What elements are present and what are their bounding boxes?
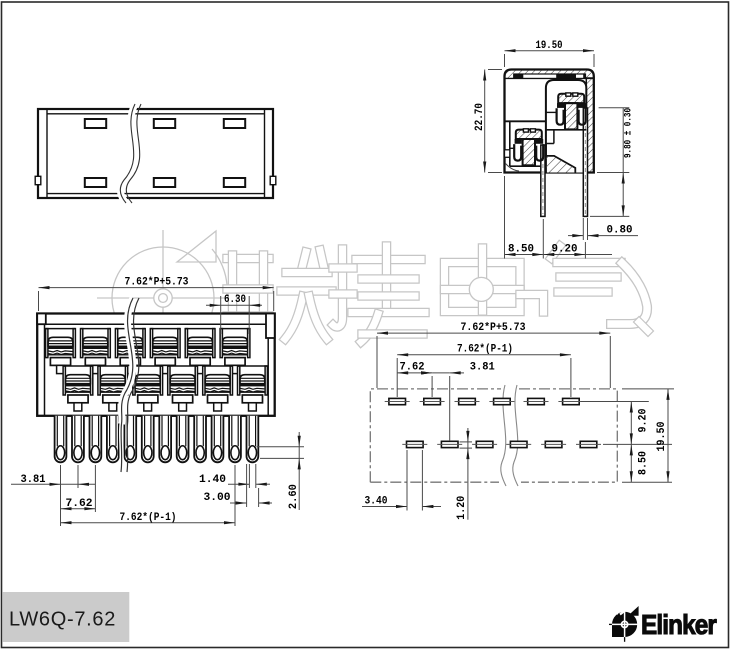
svg-text:7.62*(P-1): 7.62*(P-1)	[120, 512, 177, 524]
svg-text:19.50: 19.50	[536, 40, 563, 52]
svg-text:3.81: 3.81	[470, 362, 495, 374]
svg-text:7.62*P+5.73: 7.62*P+5.73	[461, 322, 526, 334]
svg-text:8.50: 8.50	[637, 451, 649, 475]
svg-text:3.00: 3.00	[204, 492, 231, 504]
svg-text:9.80 ± 0.30: 9.80 ± 0.30	[623, 108, 635, 158]
svg-text:0.80: 0.80	[607, 225, 633, 237]
svg-text:LW6Q-7.62: LW6Q-7.62	[9, 609, 116, 631]
svg-text:6.30: 6.30	[224, 294, 246, 306]
svg-text:9.20: 9.20	[637, 409, 649, 433]
svg-text:7.62: 7.62	[400, 362, 425, 374]
svg-text:22.70: 22.70	[474, 103, 486, 131]
svg-text:19.50: 19.50	[656, 422, 668, 452]
svg-text:2.60: 2.60	[288, 484, 300, 509]
svg-text:7.62*P+5.73: 7.62*P+5.73	[125, 276, 189, 288]
svg-text:7.62*(P-1): 7.62*(P-1)	[457, 343, 513, 355]
svg-text:1.20: 1.20	[456, 496, 468, 520]
svg-text:3.81: 3.81	[21, 474, 46, 486]
svg-text:9.20: 9.20	[552, 243, 578, 255]
svg-text:1.40: 1.40	[199, 474, 226, 486]
svg-text:8.50: 8.50	[508, 243, 534, 255]
svg-text:Elinker: Elinker	[641, 609, 717, 640]
svg-text:3.40: 3.40	[365, 496, 388, 508]
svg-text:7.62: 7.62	[66, 498, 93, 510]
